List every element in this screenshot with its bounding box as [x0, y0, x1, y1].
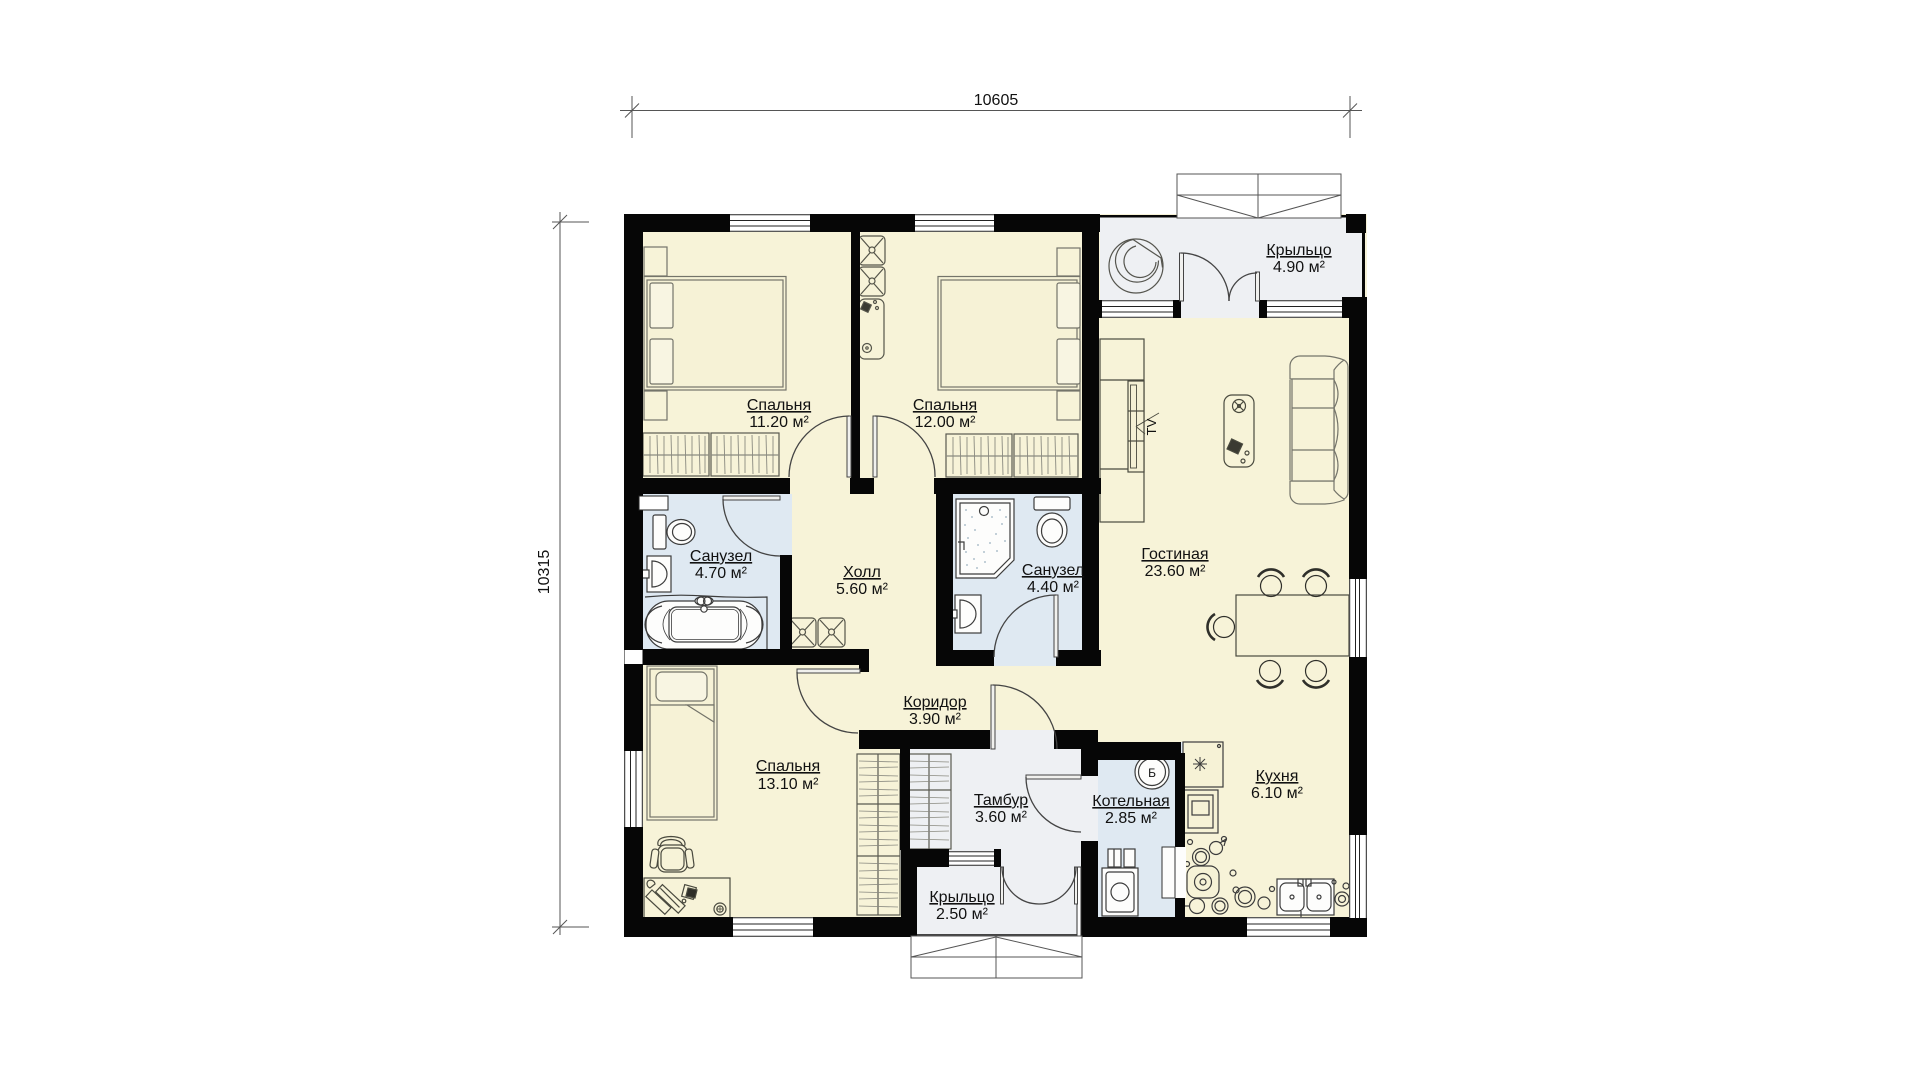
- svg-text:Спальня: Спальня: [747, 397, 811, 414]
- svg-text:6.10 м²: 6.10 м²: [1251, 785, 1304, 802]
- svg-text:4.70 м²: 4.70 м²: [695, 565, 748, 582]
- svg-text:10605: 10605: [974, 92, 1019, 109]
- svg-text:Б: Б: [1148, 766, 1156, 780]
- svg-text:11.20 м²: 11.20 м²: [749, 414, 809, 431]
- svg-text:Гостиная: Гостиная: [1141, 546, 1208, 563]
- svg-text:3.90 м²: 3.90 м²: [909, 711, 962, 728]
- svg-text:12.00 м²: 12.00 м²: [915, 414, 976, 431]
- svg-text:Холл: Холл: [843, 564, 881, 581]
- svg-text:23.60 м²: 23.60 м²: [1145, 563, 1206, 580]
- svg-text:Котельная: Котельная: [1092, 793, 1169, 810]
- svg-text:Спальня: Спальня: [913, 397, 977, 414]
- svg-text:5.60 м²: 5.60 м²: [836, 581, 889, 598]
- svg-text:Кухня: Кухня: [1256, 768, 1299, 785]
- svg-text:Санузел: Санузел: [1022, 562, 1084, 579]
- svg-text:2.50 м²: 2.50 м²: [936, 906, 989, 923]
- svg-text:4.90 м²: 4.90 м²: [1273, 259, 1326, 276]
- svg-text:Крыльцо: Крыльцо: [1266, 242, 1331, 259]
- svg-text:13.10 м²: 13.10 м²: [758, 776, 819, 793]
- svg-text:TV: TV: [1144, 418, 1159, 435]
- svg-text:10315: 10315: [536, 550, 553, 595]
- svg-text:Крыльцо: Крыльцо: [929, 889, 994, 906]
- svg-text:2.85 м²: 2.85 м²: [1105, 810, 1158, 827]
- svg-text:3.60 м²: 3.60 м²: [975, 809, 1028, 826]
- svg-text:Коридор: Коридор: [903, 694, 966, 711]
- svg-text:4.40 м²: 4.40 м²: [1027, 579, 1080, 596]
- svg-text:Спальня: Спальня: [756, 758, 820, 775]
- svg-text:Тамбур: Тамбур: [974, 792, 1028, 809]
- svg-text:Санузел: Санузел: [690, 548, 752, 565]
